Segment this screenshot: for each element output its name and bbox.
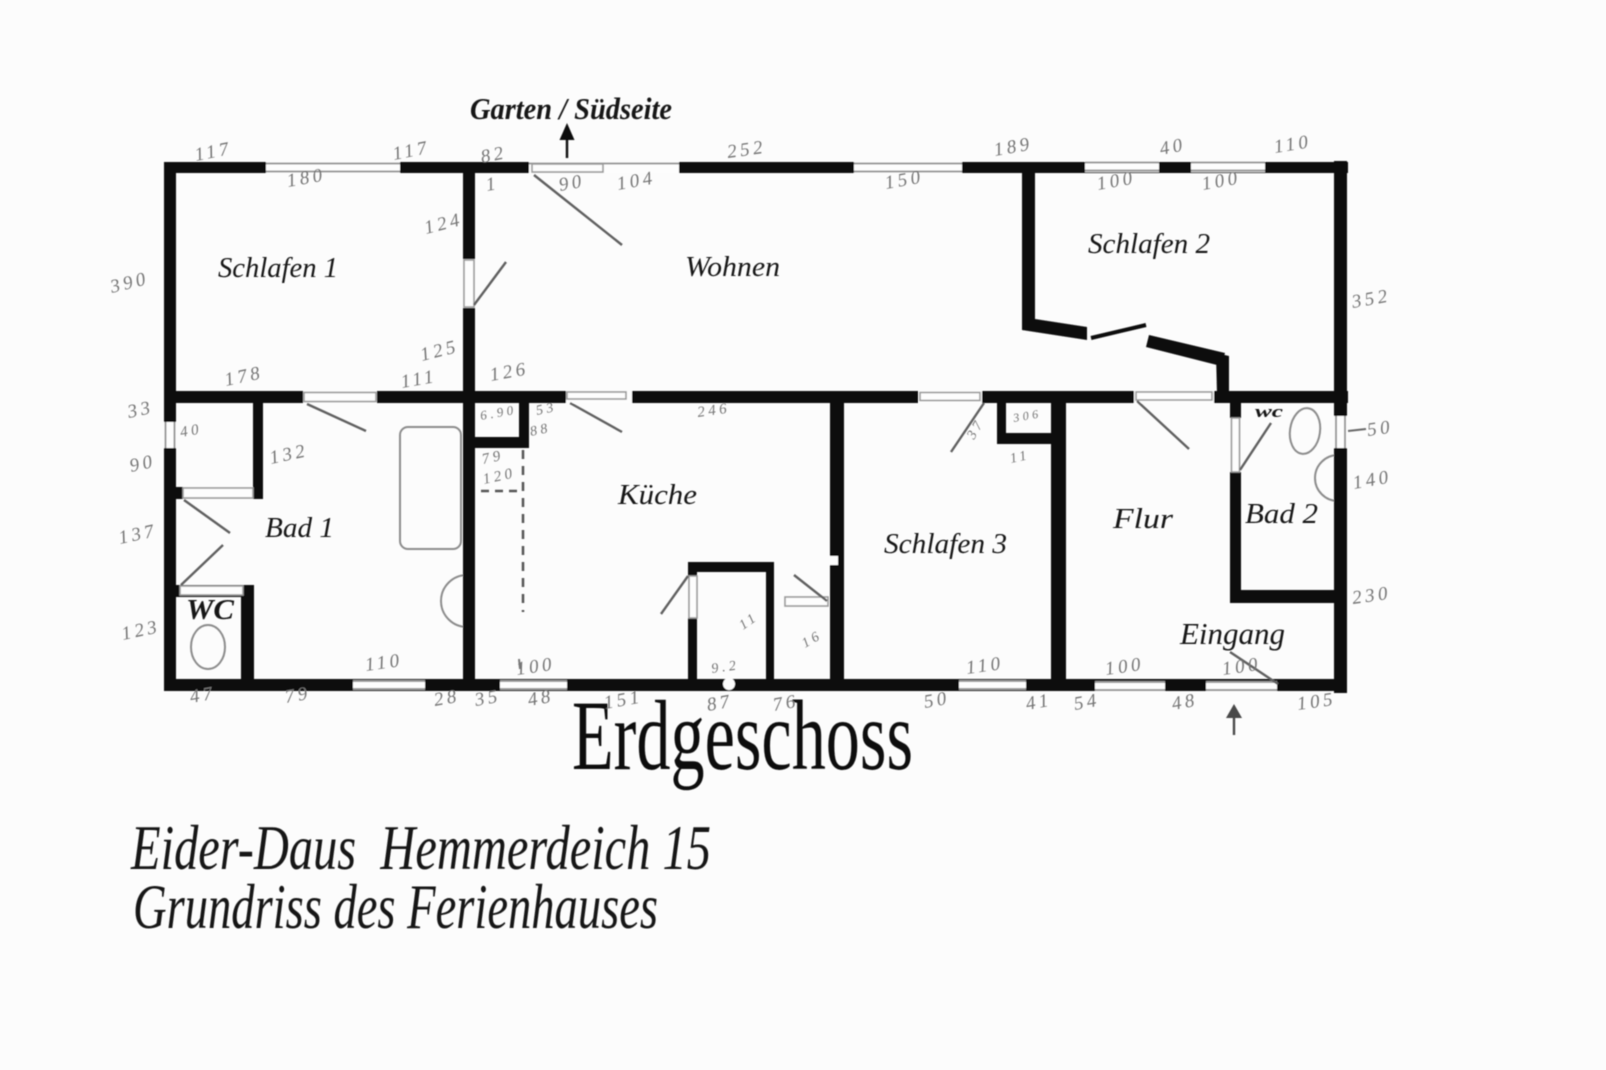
svg-text:41: 41 [1024,690,1053,715]
svg-text:76: 76 [771,691,800,716]
svg-text:Garten / Südseite: Garten / Südseite [470,91,672,126]
svg-text:Schlafen 3: Schlafen 3 [884,528,1007,560]
svg-text:Bad 2: Bad 2 [1245,498,1318,530]
svg-text:90: 90 [557,171,586,196]
svg-text:Schlafen 2: Schlafen 2 [1088,228,1210,260]
svg-text:50: 50 [922,688,951,713]
svg-text:Wohnen: Wohnen [685,251,780,283]
svg-text:wc: wc [1255,402,1284,421]
svg-text:50: 50 [1366,417,1395,441]
svg-text:47: 47 [188,683,217,708]
svg-text:Bad 1: Bad 1 [265,512,334,544]
svg-text:Küche: Küche [617,479,697,511]
svg-text:Flur: Flur [1112,503,1174,535]
svg-text:48: 48 [1170,690,1199,715]
svg-text:28: 28 [432,686,461,711]
svg-text:54: 54 [1072,690,1101,715]
svg-text:Schlafen 1: Schlafen 1 [218,252,338,284]
svg-text:79: 79 [283,683,312,708]
svg-text:Grundriss des Ferienhauses: Grundriss des Ferienhauses [133,872,658,942]
svg-text:48: 48 [526,686,555,711]
svg-text:87: 87 [705,691,734,716]
svg-text:Eingang: Eingang [1179,616,1285,651]
svg-text:WC: WC [186,594,235,626]
